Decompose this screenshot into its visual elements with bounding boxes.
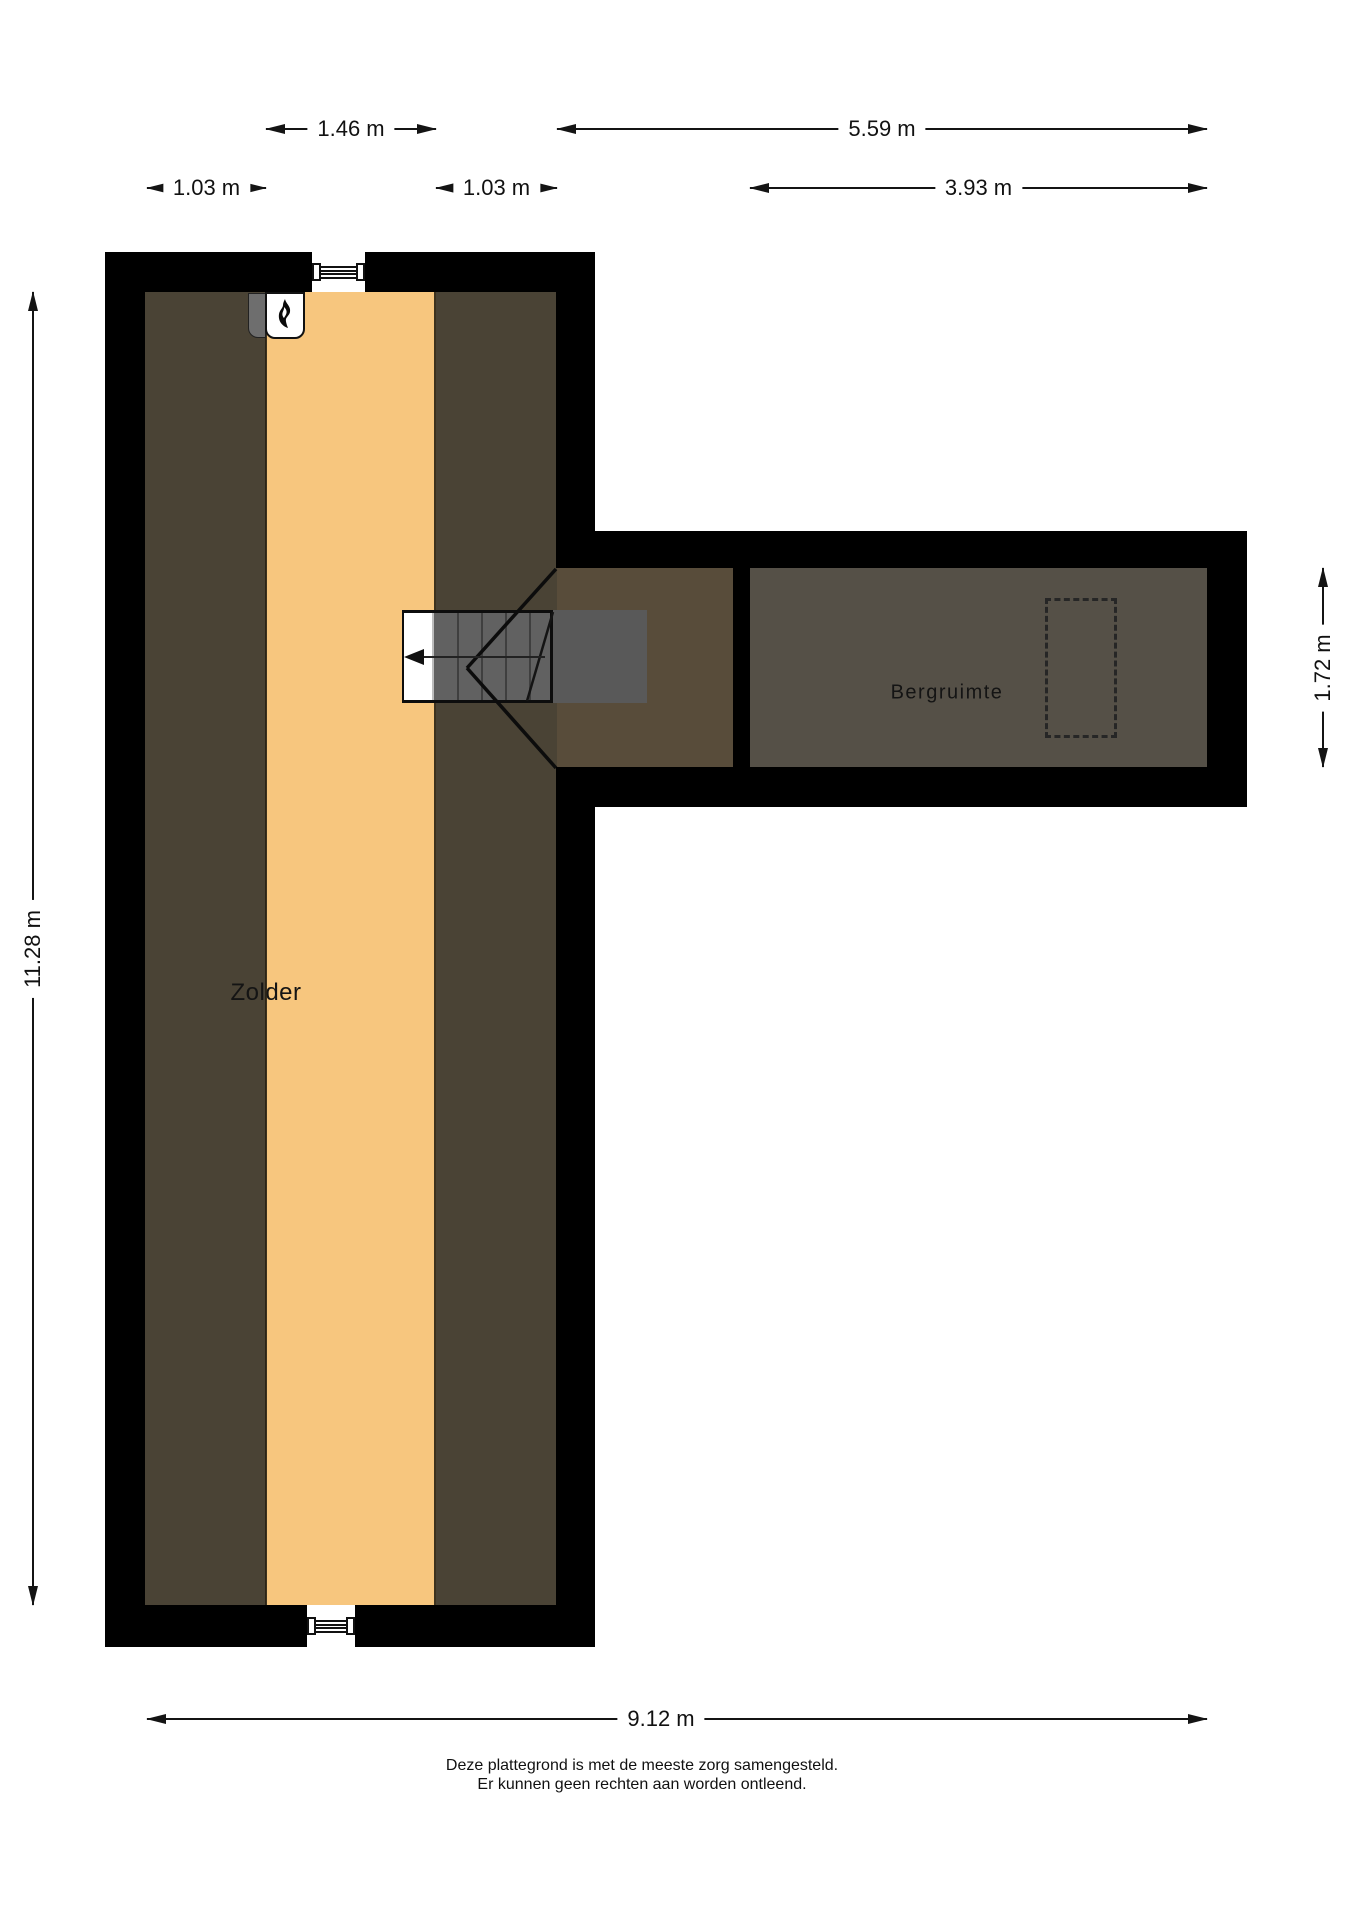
wall-right-lower (556, 807, 595, 1647)
arrow-left-icon (265, 124, 285, 134)
floorplan-canvas: Zolder Bergruimte 1.46 m 5.59 m 1.03 m 1… (0, 0, 1358, 1920)
disclaimer: Deze plattegrond is met de meeste zorg s… (42, 1756, 1242, 1794)
arrow-right-icon (1188, 124, 1208, 134)
dimension-extension-depth: 1.72 m (1310, 568, 1336, 767)
stair-slope-lines (390, 555, 670, 795)
dimension-left-strip-width: 1.03 m (147, 175, 266, 201)
window-bottom-cap-left (307, 1617, 316, 1635)
dimension-label: 1.03 m (453, 175, 540, 201)
zolder-left-sloped-zone (145, 292, 266, 1605)
dimension-total-depth: 11.28 m (20, 292, 46, 1605)
wall-extension-right (1207, 531, 1247, 807)
window-top-cap-left (312, 263, 321, 281)
dimension-right-strip-width: 1.03 m (436, 175, 557, 201)
wall-divider-bergruimte (733, 568, 750, 767)
floor-zone-border-right (434, 292, 436, 1605)
wall-left (105, 252, 145, 1647)
room-label-bergruimte: Bergruimte (891, 682, 1004, 705)
room-label-zolder: Zolder (230, 979, 301, 1007)
dimension-label: 3.93 m (935, 175, 1022, 201)
roof-slope-line (467, 668, 556, 768)
dimension-total-width: 9.12 m (147, 1706, 1207, 1732)
bergruimte-floor (750, 568, 1207, 767)
dimension-label: 1.72 m (1310, 624, 1336, 711)
wall-extension-bottom (556, 767, 1247, 807)
stair-direction-arrow-icon (404, 649, 424, 665)
disclaimer-line-2: Er kunnen geen rechten aan worden ontlee… (42, 1775, 1242, 1794)
zolder-right-sloped-zone (436, 292, 557, 1605)
arrow-right-icon (538, 183, 558, 193)
disclaimer-line-1: Deze plattegrond is met de meeste zorg s… (42, 1756, 1242, 1775)
window-bottom-frame (313, 1620, 349, 1633)
window-top-frame (318, 266, 359, 279)
window-pane-line (315, 1627, 347, 1629)
arrow-right-icon (1188, 1714, 1208, 1724)
wall-bottom-left-segment (145, 1605, 307, 1647)
boiler-side-panel (248, 293, 266, 338)
dimension-label: 1.03 m (163, 175, 250, 201)
wall-bottom-right-segment (355, 1605, 595, 1647)
arrow-down-icon (1318, 748, 1328, 768)
window-bottom-cap-right (346, 1617, 355, 1635)
arrow-right-icon (417, 124, 437, 134)
dimension-bergruimte-width: 3.93 m (750, 175, 1207, 201)
arrow-left-icon (146, 1714, 166, 1724)
arrow-left-icon (556, 124, 576, 134)
arrow-up-icon (28, 291, 38, 311)
wall-right-upper (556, 252, 595, 568)
dashed-feature-outline (1045, 598, 1117, 738)
zolder-center-floor (266, 292, 436, 1605)
wall-extension-top (595, 531, 1247, 568)
dimension-extension-total-width: 5.59 m (557, 116, 1207, 142)
window-pane-line (315, 1624, 347, 1626)
flame-icon (275, 299, 295, 329)
arrow-down-icon (28, 1586, 38, 1606)
dimension-label: 5.59 m (838, 116, 925, 142)
dimension-label: 1.46 m (307, 116, 394, 142)
arrow-left-icon (749, 183, 769, 193)
dimension-label: 9.12 m (617, 1706, 704, 1732)
roof-slope-line (467, 569, 556, 668)
floor-zone-border-left (265, 292, 267, 1605)
wall-top-left-segment (145, 252, 312, 292)
arrow-right-icon (1188, 183, 1208, 193)
window-top-cap-right (356, 263, 365, 281)
arrow-up-icon (1318, 567, 1328, 587)
dimension-label: 11.28 m (20, 900, 46, 998)
dimension-ridge-width: 1.46 m (266, 116, 436, 142)
window-pane-line (320, 273, 357, 275)
window-pane-line (320, 270, 357, 272)
